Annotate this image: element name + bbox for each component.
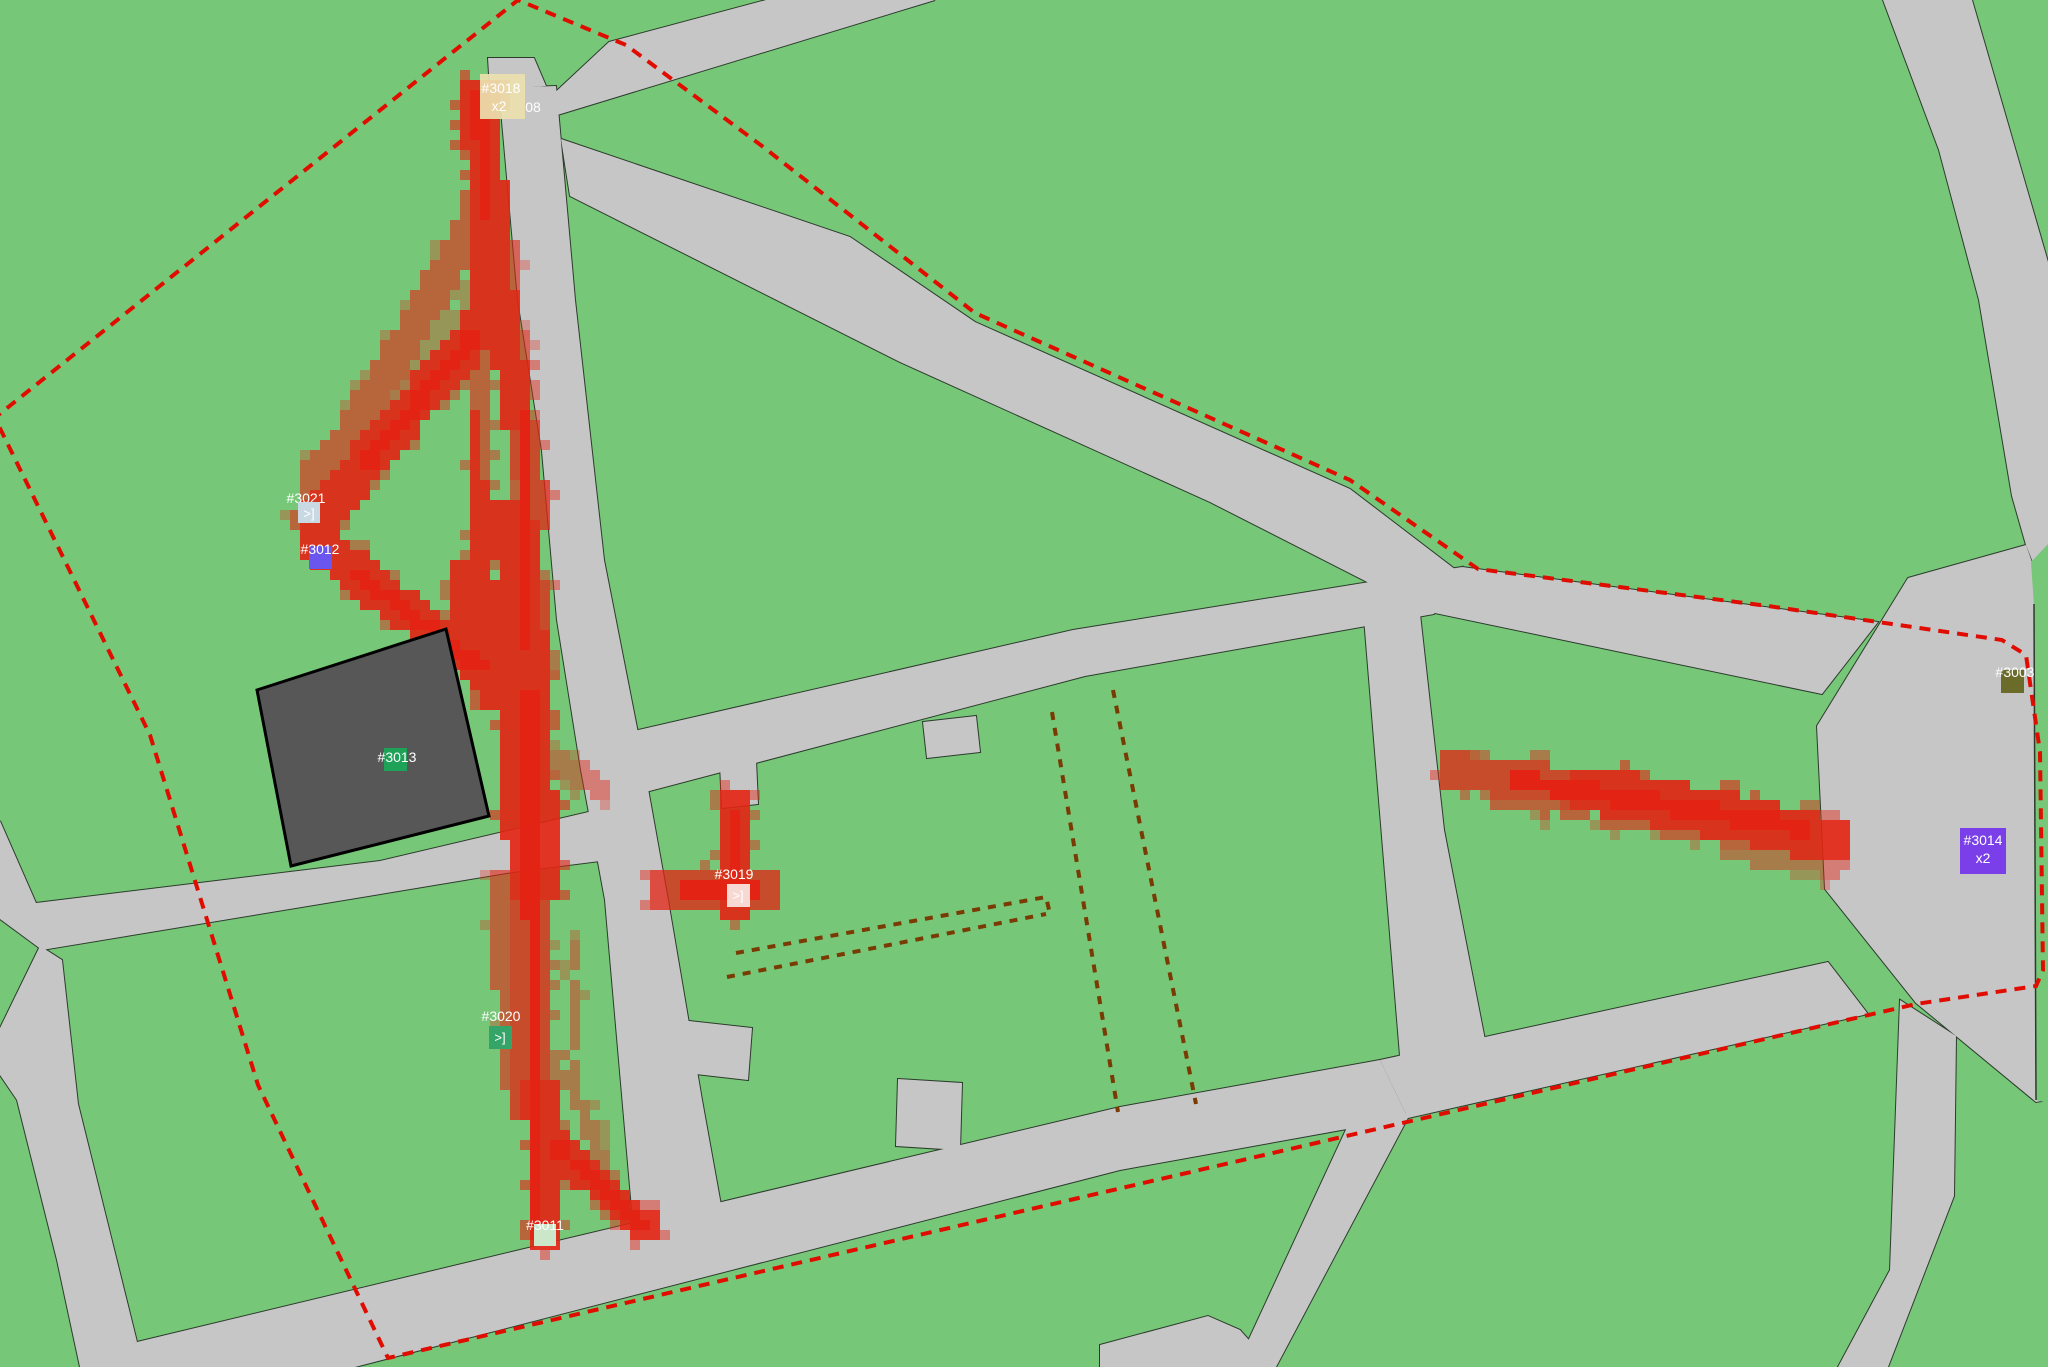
svg-text:#3020: #3020: [482, 1008, 521, 1024]
svg-text:#3012: #3012: [301, 541, 340, 557]
svg-text:x2: x2: [492, 98, 507, 114]
svg-text:#3019: #3019: [715, 866, 754, 882]
svg-text:#3003: #3003: [1996, 664, 2035, 680]
svg-text:#3014: #3014: [1964, 832, 2003, 848]
svg-text:>]: >]: [732, 888, 743, 903]
svg-text:>]: >]: [494, 1030, 505, 1045]
svg-text:08: 08: [525, 99, 541, 115]
svg-text:>]: >]: [303, 506, 314, 521]
svg-text:#3013: #3013: [378, 749, 417, 765]
svg-text:x2: x2: [1976, 850, 1991, 866]
svg-text:#3018: #3018: [482, 80, 521, 96]
svg-text:#3011: #3011: [526, 1217, 564, 1233]
